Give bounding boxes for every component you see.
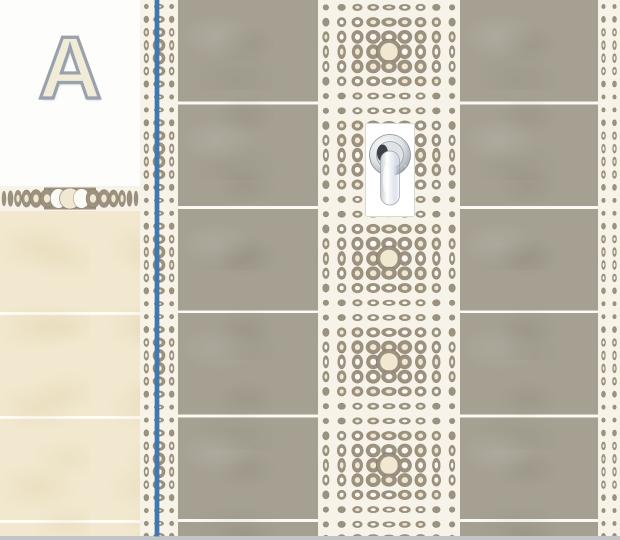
beige-tile-area — [0, 211, 140, 536]
floor-edge — [0, 536, 620, 540]
left-deco-strip — [140, 0, 178, 536]
section-marker-line — [155, 0, 159, 536]
elevation-label: A — [0, 24, 140, 112]
shower-mixer-fixture — [365, 123, 415, 217]
center-deco-strip — [318, 0, 460, 536]
listello-border-strip — [0, 186, 140, 211]
gray-tile-column-right — [460, 0, 598, 536]
tile-elevation-view: A — [0, 0, 620, 540]
gray-tile-column-left — [178, 0, 318, 536]
right-deco-strip — [598, 0, 620, 536]
